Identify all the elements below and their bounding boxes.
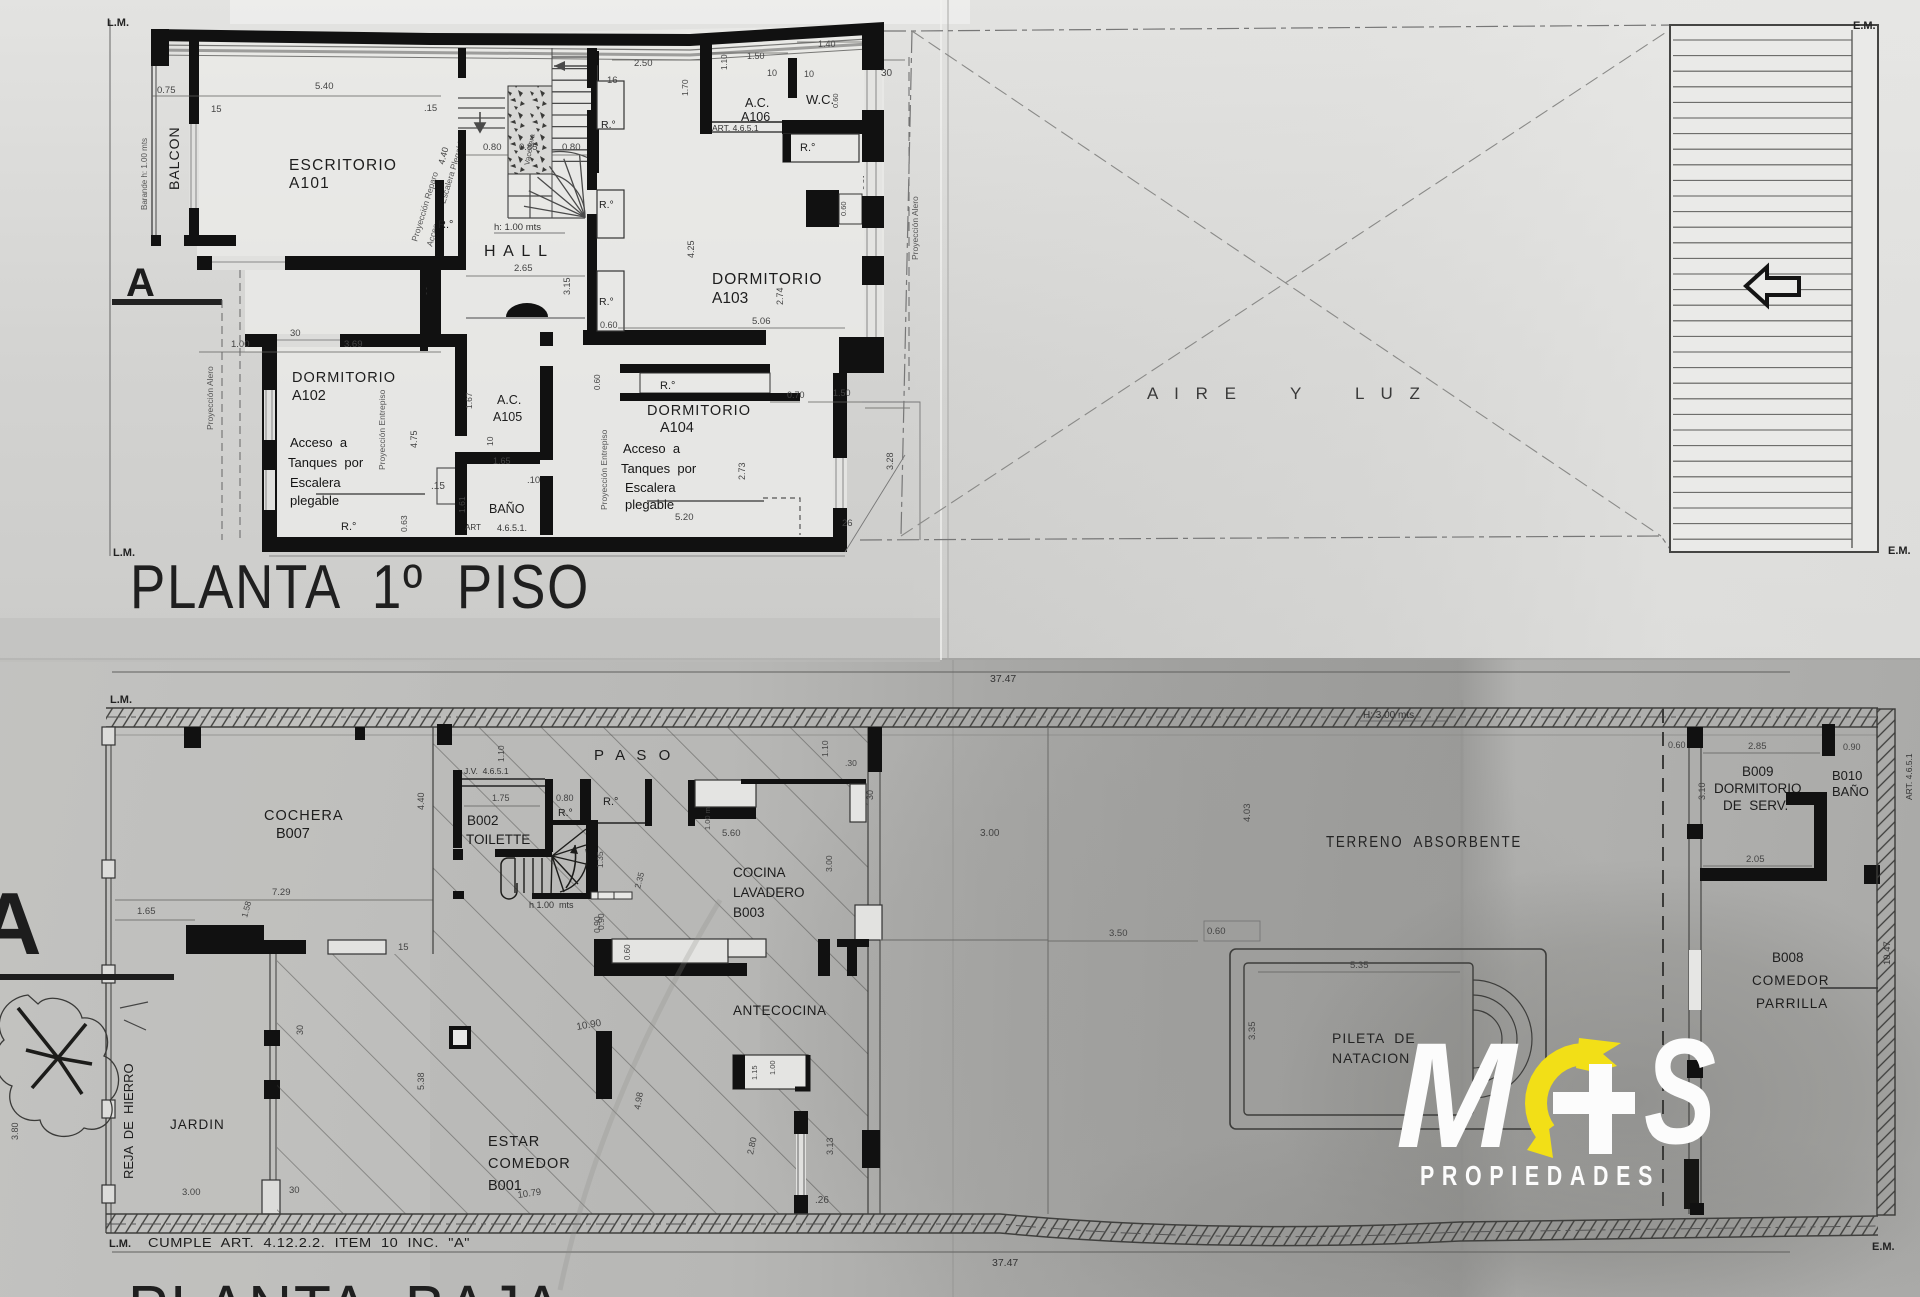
svg-text:B007: B007 [276,826,310,842]
svg-text:0.90: 0.90 [1843,742,1861,752]
svg-text:3.10: 3.10 [1697,782,1707,800]
svg-text:15: 15 [211,104,222,115]
svg-text:A103: A103 [712,290,748,307]
svg-text:R.°: R.° [660,380,675,392]
svg-text:3.15: 3.15 [562,277,572,295]
svg-text:1.10: 1.10 [496,745,506,762]
svg-text:1.65: 1.65 [137,906,156,917]
svg-text:H A L L: H A L L [484,243,549,260]
svg-text:0.75: 0.75 [157,85,176,96]
svg-text:2.74: 2.74 [775,287,785,305]
svg-text:Acceso a: Acceso a [290,435,348,450]
svg-text:A.C.: A.C. [497,393,521,407]
svg-text:5.20: 5.20 [675,512,694,523]
svg-text:1.50: 1.50 [747,51,765,61]
svg-text:ESTAR: ESTAR [488,1134,540,1150]
svg-text:BALCON: BALCON [166,126,182,190]
svg-text:h: 1.00 mts: h: 1.00 mts [494,222,541,233]
svg-text:PARRILLA: PARRILLA [1756,996,1828,1011]
svg-text:3.13: 3.13 [825,1137,835,1155]
svg-text:1.35: 1.35 [595,851,605,868]
svg-text:3.35: 3.35 [1247,1022,1258,1041]
svg-text:Acceso a: Acceso a [623,441,681,456]
svg-text:2.85: 2.85 [1748,741,1767,752]
svg-text:3.00: 3.00 [824,855,834,872]
svg-text:R.°: R.° [800,142,815,154]
svg-text:DORMITORIO: DORMITORIO [647,403,751,419]
svg-text:0.70: 0.70 [787,390,805,400]
svg-text:A I R E: A I R E [1147,384,1242,403]
svg-text:H: 3.00 mts: H: 3.00 mts [1363,710,1414,721]
svg-text:1.65: 1.65 [493,456,511,466]
svg-text:15: 15 [398,942,409,953]
svg-text:A105: A105 [493,410,522,424]
svg-text:JARDIN: JARDIN [170,1117,225,1132]
svg-text:16: 16 [607,75,618,86]
svg-text:Proyección Entrepiso: Proyección Entrepiso [377,389,387,470]
svg-text:4.03: 4.03 [1242,804,1253,823]
svg-text:A106: A106 [741,110,770,124]
svg-text:10: 10 [804,69,814,79]
svg-text:LAVADERO: LAVADERO [733,885,805,900]
svg-text:E.M.: E.M. [1872,1241,1895,1253]
svg-text:L.M.: L.M. [110,694,132,706]
svg-text:ART. 4.6.5.1: ART. 4.6.5.1 [1904,753,1914,800]
svg-text:COCHERA: COCHERA [264,808,344,824]
svg-text:1.50: 1.50 [833,388,851,398]
svg-text:R.°: R.° [341,521,356,533]
svg-text:1.15: 1.15 [750,1065,759,1080]
svg-text:Proyección Alero: Proyección Alero [910,196,920,260]
svg-text:B010: B010 [1832,768,1862,783]
svg-text:1.10: 1.10 [820,740,830,757]
svg-text:R.°: R.° [599,296,614,308]
svg-text:0.85: 0.85 [519,142,538,153]
svg-text:R.°: R.° [603,796,618,808]
svg-text:A: A [0,874,42,973]
svg-text:S: S [1644,1007,1716,1175]
svg-text:0.80: 0.80 [556,793,574,803]
svg-text:7.29: 7.29 [272,887,291,898]
svg-text:5.60: 5.60 [722,828,741,839]
svg-text:10: 10 [767,68,777,78]
svg-text:E.M.: E.M. [1888,545,1911,557]
svg-text:Barande h: 1.00 mts: Barande h: 1.00 mts [140,138,149,210]
svg-text:BAÑO: BAÑO [1832,784,1869,799]
svg-text:B009: B009 [1742,764,1774,779]
svg-text:.10: .10 [527,475,540,486]
svg-text:.15: .15 [431,481,445,492]
svg-text:3.50: 3.50 [1109,928,1128,939]
svg-text:B002: B002 [467,813,499,828]
svg-text:0.60: 0.60 [600,320,618,330]
svg-text:A.C.: A.C. [745,96,769,110]
svg-text:10.47: 10.47 [1882,941,1893,965]
svg-text:37.47: 37.47 [990,673,1016,685]
svg-text:h 1.00 mts: h 1.00 mts [529,900,574,910]
svg-text:3.00: 3.00 [182,1187,201,1198]
svg-text:M: M [1396,1011,1519,1179]
svg-text:3.00: 3.00 [980,828,1000,839]
svg-text:Proyección Entrepiso: Proyección Entrepiso [599,429,609,510]
svg-text:1.75: 1.75 [492,793,510,803]
svg-text:5.06: 5.06 [752,316,771,327]
svg-text:DE SERV.: DE SERV. [1723,798,1788,813]
svg-text:A104: A104 [660,420,694,436]
svg-text:5.38: 5.38 [416,1072,426,1090]
svg-text:Tanques por: Tanques por [621,461,697,476]
svg-text:0.80: 0.80 [562,142,581,153]
svg-text:0.60: 0.60 [593,374,602,390]
svg-text:A102: A102 [292,388,326,404]
svg-text:1.00: 1.00 [768,1060,777,1075]
svg-text:1.70: 1.70 [680,79,690,96]
svg-text:3.28: 3.28 [885,452,895,470]
svg-text:B003: B003 [733,905,765,920]
svg-text:0.60: 0.60 [1668,740,1686,750]
svg-text:1.10: 1.10 [720,54,729,70]
svg-text:4.6.5.1.: 4.6.5.1. [497,523,527,533]
svg-text:COMEDOR: COMEDOR [488,1156,571,1172]
svg-text:plegable: plegable [290,493,339,508]
svg-text:COCINA: COCINA [733,865,786,880]
svg-text:B008: B008 [1772,950,1804,965]
svg-text:5.40: 5.40 [315,81,334,92]
svg-text:2.05: 2.05 [1746,854,1765,865]
svg-text:Escalera: Escalera [625,480,676,495]
svg-text:Proyección Alero: Proyección Alero [205,366,215,430]
svg-text:2.65: 2.65 [514,263,533,274]
svg-text:Y: Y [1290,384,1307,403]
svg-text:TOILETTE: TOILETTE [466,832,530,847]
svg-text:ART. 4.6.5.1: ART. 4.6.5.1 [712,123,759,133]
svg-text:R.°: R.° [601,119,616,131]
svg-text:plegable: plegable [625,497,674,512]
svg-text:J.V. 4.6.5.1: J.V. 4.6.5.1 [464,766,509,776]
svg-text:Tanques por: Tanques por [288,455,364,470]
svg-text:.26: .26 [815,1195,829,1206]
svg-text:1.40: 1.40 [818,39,836,49]
svg-text:30: 30 [881,68,893,79]
svg-text:CUMPLE ART. 4.12.2.2. ITEM: CUMPLE ART. 4.12.2.2. ITEM 10 INC. "A" [148,1235,470,1250]
svg-text:E.M.: E.M. [1853,20,1876,32]
svg-text:26: 26 [842,518,853,529]
svg-text:DORMITORIO: DORMITORIO [292,370,396,386]
svg-text:0.60: 0.60 [831,93,840,108]
svg-text:ANTECOCINA: ANTECOCINA [733,1003,827,1018]
svg-text:0.60: 0.60 [623,944,632,960]
svg-text:L U Z: L U Z [1355,384,1426,403]
svg-text:3.69: 3.69 [344,339,363,350]
svg-text:REJA DE HIERRO: REJA DE HIERRO [121,1063,136,1179]
svg-text:0.80: 0.80 [483,142,502,153]
svg-text:PLANTA BAJA: PLANTA BAJA [128,1272,564,1297]
svg-text:30: 30 [290,328,301,339]
svg-text:L.M.: L.M. [109,1238,131,1250]
svg-text:R.°: R.° [599,199,614,211]
svg-text:DORMITORIO: DORMITORIO [712,271,822,288]
svg-text:BAÑO: BAÑO [489,502,525,516]
svg-text:4.40: 4.40 [416,792,426,810]
svg-text:PROPIEDADES: PROPIEDADES [1420,1160,1660,1191]
svg-text:Escalera: Escalera [290,475,341,490]
svg-text:30: 30 [865,790,875,800]
svg-text:L.M.: L.M. [107,17,129,29]
svg-text:5.35: 5.35 [1350,960,1369,971]
svg-text:.30: .30 [845,758,857,768]
svg-text:R.°: R.° [438,219,453,231]
svg-text:A: A [126,261,155,305]
svg-text:R.°: R.° [558,807,573,819]
svg-text:0.90: 0.90 [596,913,606,930]
svg-text:0.60: 0.60 [1207,926,1226,937]
svg-text:COMEDOR: COMEDOR [1752,973,1830,988]
svg-text:TERRENO ABSORBENTE: TERRENO ABSORBENTE [1326,834,1522,851]
svg-text:1.00 m: 1.00 m [703,807,712,830]
svg-text:1.61: 1.61 [457,496,467,513]
svg-text:W.C.: W.C. [806,92,834,107]
svg-text:3.80: 3.80 [10,1122,20,1140]
svg-text:A101: A101 [289,175,330,192]
svg-text:4.25: 4.25 [686,240,696,258]
svg-text:ESCRITORIO: ESCRITORIO [289,157,397,174]
svg-text:0.60: 0.60 [839,201,848,216]
svg-text:4.75: 4.75 [409,430,419,448]
svg-text:37.47: 37.47 [992,1257,1018,1269]
svg-text:PLANTA 1º PISO: PLANTA 1º PISO [130,553,590,622]
svg-text:0.63: 0.63 [399,515,409,532]
svg-text:2.73: 2.73 [737,462,747,480]
svg-text:.15: .15 [424,103,437,114]
svg-text:ART: ART [465,523,481,532]
svg-text:P A S O: P A S O [594,747,674,764]
svg-text:1.67: 1.67 [464,392,474,409]
svg-text:10: 10 [485,436,495,446]
